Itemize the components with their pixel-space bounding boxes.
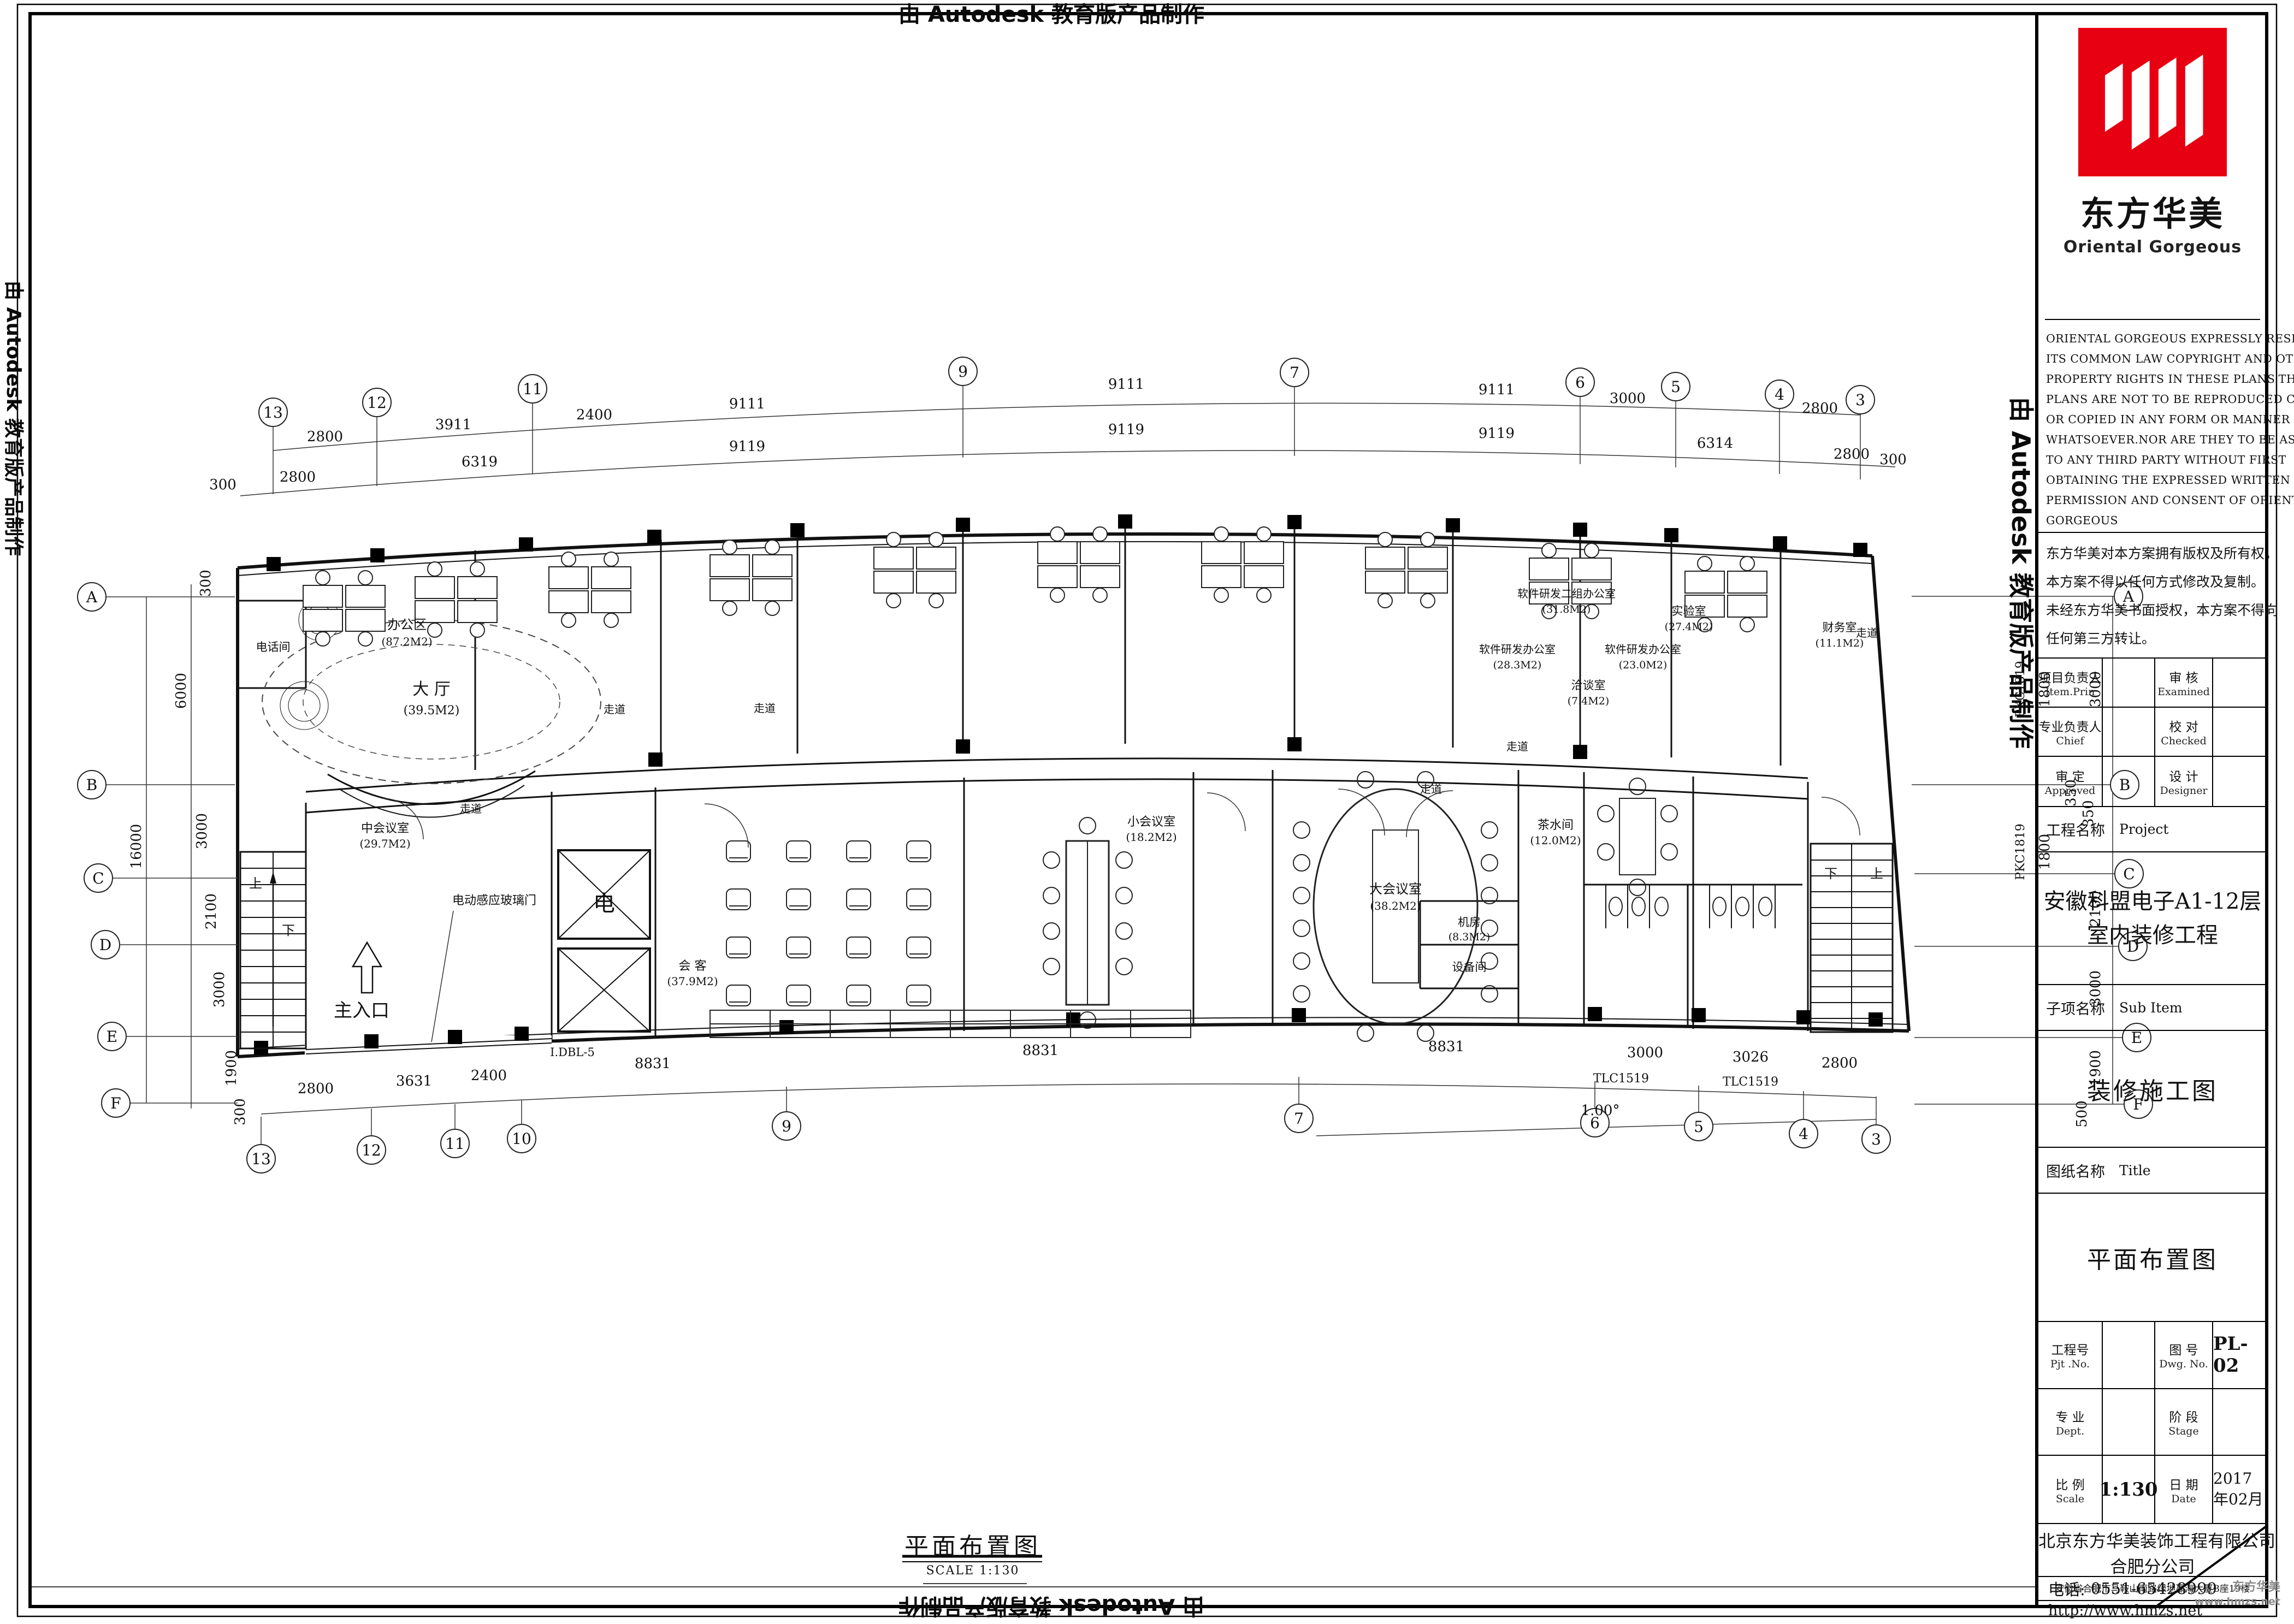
rights-line: 未经东方华美书面授权，本方案不得向 bbox=[2046, 596, 2262, 625]
corridor-label: 走道 bbox=[1506, 740, 1528, 753]
project-name-line2: 室内装修工程 bbox=[2087, 918, 2218, 952]
grid-label: 11 bbox=[523, 380, 542, 398]
washroom-fixtures bbox=[1609, 897, 1772, 916]
cell-blank bbox=[2103, 659, 2155, 708]
grid-label: 9 bbox=[958, 363, 968, 381]
dim-label: 9119 bbox=[1479, 425, 1515, 442]
sheet-title-text: 平面布置图 bbox=[2087, 1240, 2218, 1275]
room-label-lobby: 大 厅 bbox=[412, 680, 451, 699]
dim-label: 3911 bbox=[435, 417, 471, 433]
room-area-office-area: (87.2M2) bbox=[381, 635, 432, 648]
label: 图 号 bbox=[2169, 1339, 2198, 1358]
cell-stage: 阶 段Stage bbox=[2155, 1389, 2213, 1456]
sheet-label-row: 图纸名称 Title bbox=[2038, 1148, 2267, 1194]
grid-label: 4 bbox=[1775, 386, 1784, 404]
entrance-arrow bbox=[353, 943, 381, 993]
stair-down-label: 下 bbox=[1824, 866, 1837, 881]
dim-label: 9119 bbox=[729, 438, 765, 455]
room-area-rd3: (23.0M2) bbox=[1619, 659, 1668, 671]
autodesk-banner-top: 由 Autodesk 教育版产品制作 bbox=[778, 0, 1325, 28]
dim-label: 8831 bbox=[635, 1056, 671, 1072]
copyright-line: GORGEOUS bbox=[2046, 511, 2261, 531]
grid-label: 10 bbox=[512, 1130, 531, 1148]
cell-blank bbox=[2103, 757, 2155, 806]
subitem-value: 装修施工图 bbox=[2038, 1031, 2267, 1148]
rights-line: 任何第三方转让。 bbox=[2046, 625, 2262, 653]
floor-plan-sheet: 13 12 11 9 7 6 5 4 3 13 12 11 10 9 7 6 5… bbox=[0, 0, 2294, 1622]
label: 工程号 bbox=[2051, 1339, 2089, 1358]
scale-value: 1:130 bbox=[979, 1564, 1019, 1578]
room-label-glass-door: 电动感应玻璃门 bbox=[452, 894, 536, 908]
copyright-line: PLANS ARE NOT TO BE REPRODUCED CHANGED bbox=[2046, 389, 2261, 410]
grid-label: E bbox=[107, 1028, 117, 1046]
grid-label: 12 bbox=[367, 394, 387, 412]
room-label-rd2: 软件研发二组办公室 bbox=[1517, 587, 1616, 600]
label-en: Chief bbox=[2056, 735, 2084, 747]
room-area-server: (8.3M2) bbox=[1448, 931, 1491, 943]
project-label-en: Project bbox=[2119, 821, 2168, 837]
dim-label: 3631 bbox=[396, 1073, 432, 1089]
scale-label: SCALE bbox=[926, 1564, 974, 1578]
project-label-row: 工程名称 Project bbox=[2038, 807, 2267, 852]
room-area-reception: (37.9M2) bbox=[667, 975, 718, 988]
sheet-label-cn: 图纸名称 bbox=[2046, 1160, 2105, 1181]
copyright-line: OBTAINING THE EXPRESSED WRITTEN bbox=[2046, 470, 2261, 490]
dim-label: 8831 bbox=[1022, 1042, 1059, 1059]
dim-label: 2800 bbox=[280, 469, 316, 485]
stair-up-label: 上 bbox=[249, 876, 262, 891]
project-label-cn: 工程名称 bbox=[2046, 819, 2105, 840]
label-en: Designer bbox=[2160, 785, 2207, 797]
dim-label: 2800 bbox=[1834, 446, 1870, 463]
title-block: 东方华美 Oriental Gorgeous ORIENTAL GORGEOUS… bbox=[2035, 14, 2267, 1607]
stair-up-label: 上 bbox=[1870, 866, 1883, 881]
corridor-label: 走道 bbox=[460, 802, 482, 815]
cell-date-value: 2017年02月 bbox=[2213, 1456, 2267, 1523]
cell-item-prin: 项目负责人Item.Prin bbox=[2038, 659, 2103, 708]
room-area-negotiation: (7.4M2) bbox=[1568, 695, 1610, 707]
label: 比 例 bbox=[2055, 1474, 2084, 1493]
dim-label: 3000 bbox=[211, 971, 228, 1007]
room-label-meeting-large: 大会议室 bbox=[1369, 881, 1422, 897]
label: 审 定 bbox=[2055, 766, 2084, 785]
dim-label: 1900 bbox=[223, 1050, 240, 1086]
room-label-rd3: 软件研发办公室 bbox=[1605, 643, 1681, 656]
window-mark: TLC1519 bbox=[1593, 1072, 1649, 1086]
grid-label: F bbox=[110, 1094, 121, 1112]
grid-label: C bbox=[92, 869, 104, 887]
dim-label: 6000 bbox=[173, 673, 190, 709]
dim-label: 6319 bbox=[462, 454, 498, 470]
dim-label: 300 bbox=[209, 477, 237, 493]
room-label-reception: 会 客 bbox=[679, 959, 707, 973]
copyright-line: PROPERTY RIGHTS IN THESE PLANS.THESE bbox=[2046, 369, 2261, 389]
subitem-label-row: 子项名称 Sub Item bbox=[2038, 985, 2267, 1031]
dim-label: 2800 bbox=[1802, 400, 1838, 417]
subitem-label-en: Sub Item bbox=[2119, 1000, 2183, 1016]
room-label-rd1: 软件研发办公室 bbox=[1479, 643, 1556, 656]
training-chairs bbox=[726, 841, 931, 1006]
grid-label: A bbox=[86, 588, 98, 606]
dim-label: 9111 bbox=[1108, 376, 1144, 393]
cell-pjt-no: 工程号Pjt .No. bbox=[2038, 1322, 2103, 1389]
corridor-label: 走道 bbox=[754, 702, 776, 715]
drawing-title: 平面布置图 bbox=[901, 1527, 1044, 1562]
company-branch: 合肥分公司 bbox=[2038, 1553, 2267, 1578]
room-label-office-area: 办公区 bbox=[387, 617, 427, 632]
dim-label: 2800 bbox=[1822, 1055, 1858, 1071]
grid-label: 11 bbox=[445, 1135, 465, 1153]
cell-approved: 审 定Approved bbox=[2038, 757, 2103, 806]
room-label-pantry: 茶水间 bbox=[1538, 819, 1574, 832]
cell-scale-value: 1:130 bbox=[2103, 1456, 2155, 1523]
dim-label: 2800 bbox=[298, 1081, 334, 1097]
room-label-meeting-small: 小会议室 bbox=[1127, 815, 1175, 829]
room-label-equipment: 设备间 bbox=[1452, 961, 1487, 974]
grid-label: 5 bbox=[1671, 378, 1681, 396]
elevator-shafts bbox=[558, 850, 650, 1032]
corner-brand-name: 东方华美 bbox=[2171, 1580, 2280, 1595]
room-label-negotiation: 洽谈室 bbox=[1571, 679, 1606, 692]
dim-label: 3000 bbox=[1627, 1045, 1663, 1061]
grid-label: 13 bbox=[263, 404, 283, 422]
copyright-line: ITS COMMON LAW COPYRIGHT AND OTHER bbox=[2046, 349, 2261, 369]
project-name-line1: 安徽科盟电子A1-12层 bbox=[2044, 885, 2262, 918]
dim-label: 300 bbox=[232, 1098, 249, 1125]
dim-label: 9111 bbox=[1479, 382, 1515, 398]
grid-label: 5 bbox=[1694, 1118, 1704, 1136]
cell-date: 日 期Date bbox=[2155, 1456, 2213, 1523]
corner-brand: 东方华美 www.hmzs.net bbox=[2171, 1580, 2280, 1609]
cell-dwg-no-value: PL-02 bbox=[2213, 1322, 2267, 1389]
grid-label: 3 bbox=[1871, 1130, 1881, 1148]
label-en: Checked bbox=[2161, 735, 2207, 747]
dim-label: 300 bbox=[1879, 452, 1907, 468]
autodesk-banner-left: 由 Autodesk 教育版产品制作 bbox=[1, 211, 29, 626]
stair-down-label: 下 bbox=[282, 923, 295, 938]
copyright-line: TO ANY THIRD PARTY WITHOUT FIRST bbox=[2046, 450, 2261, 470]
room-label-meeting-mid: 中会议室 bbox=[361, 822, 409, 835]
date-value: 2017年02月 bbox=[2213, 1469, 2267, 1509]
company-name: 北京东方华美装饰工程有限公司 bbox=[2038, 1532, 2275, 1551]
room-label-phone: 电话间 bbox=[256, 641, 291, 654]
logo-name-cn: 东方华美 bbox=[2045, 186, 2260, 235]
label: 审 核 bbox=[2169, 667, 2198, 686]
label-en: Approved bbox=[2045, 785, 2096, 797]
cell-chief: 专业负责人Chief bbox=[2038, 708, 2103, 757]
grid-label: 12 bbox=[362, 1141, 381, 1159]
cell-dept: 专 业Dept. bbox=[2038, 1389, 2103, 1456]
pantry-fixtures bbox=[1598, 778, 1677, 896]
rights-line: 本方案不得以任何方式修改及复制。 bbox=[2046, 568, 2262, 596]
label: 阶 段 bbox=[2169, 1407, 2198, 1425]
grid-label: 3 bbox=[1855, 391, 1865, 409]
cell-designer: 设 计Designer bbox=[2155, 757, 2213, 806]
label: 日 期 bbox=[2169, 1474, 2198, 1493]
room-area-finance: (11.1M2) bbox=[1816, 637, 1864, 649]
grid-label: 9 bbox=[782, 1117, 791, 1135]
logo-m-icon bbox=[2078, 28, 2227, 176]
dim-label: 3000 bbox=[1610, 390, 1646, 407]
dwg-no-value: PL-02 bbox=[2213, 1333, 2267, 1377]
label: 设 计 bbox=[2169, 766, 2198, 785]
label-en: Examined bbox=[2157, 686, 2210, 698]
room-area-lab: (27.4M2) bbox=[1665, 621, 1713, 633]
cell-examined: 审 核Examined bbox=[2155, 659, 2213, 708]
sheet-value: 平面布置图 bbox=[2038, 1194, 2267, 1322]
window-mark: TLC1519 bbox=[1723, 1075, 1778, 1089]
room-area-meeting-large: (38.2M2) bbox=[1370, 899, 1421, 912]
room-area-lobby: (39.5M2) bbox=[404, 704, 460, 718]
grid-label: 4 bbox=[1799, 1125, 1808, 1143]
subitem-text: 装修施工图 bbox=[2087, 1071, 2218, 1106]
room-area-pantry: (12.0M2) bbox=[1530, 834, 1581, 847]
autodesk-banner-bottom: 由 Autodesk 教育版产品制作 bbox=[778, 1592, 1325, 1624]
label: 专 业 bbox=[2055, 1407, 2084, 1425]
grid-label: 7 bbox=[1290, 364, 1299, 382]
scale-value: 1:130 bbox=[2099, 1479, 2157, 1501]
cell-blank bbox=[2103, 1322, 2155, 1389]
cell-blank bbox=[2213, 708, 2267, 757]
room-label-elevator: 电 bbox=[593, 891, 615, 916]
cell-checked: 校 对Checked bbox=[2155, 708, 2213, 757]
dim-label: 9111 bbox=[729, 396, 765, 412]
dim-label: 3026 bbox=[1733, 1049, 1769, 1065]
dim-label: 2400 bbox=[471, 1068, 507, 1084]
phone-label: 电话: bbox=[2048, 1577, 2085, 1600]
room-label-lab: 实验室 bbox=[1672, 604, 1706, 618]
dim-label: 300 bbox=[198, 570, 214, 597]
room-area-meeting-mid: (29.7M2) bbox=[359, 837, 410, 850]
corridor-label: 走道 bbox=[604, 703, 625, 716]
room-label-elevator-model: I.DBL-5 bbox=[550, 1046, 595, 1059]
label: 校 对 bbox=[2169, 716, 2198, 735]
label-en: Date bbox=[2171, 1493, 2196, 1505]
grid-label: 6 bbox=[1575, 374, 1585, 392]
grid-label: D bbox=[99, 936, 111, 954]
copyright-line: ORIENTAL GORGEOUS EXPRESSLY RESERVES bbox=[2046, 329, 2261, 349]
oriental-gorgeous-logo bbox=[2078, 28, 2227, 176]
corridor-label: 走道 bbox=[1420, 783, 1442, 796]
rights-cn-block: 东方华美对本方案拥有版权及所有权。 本方案不得以任何方式修改及复制。 未经东方华… bbox=[2038, 533, 2267, 659]
cell-blank bbox=[2103, 1389, 2155, 1456]
project-name: 安徽科盟电子A1-12层 室内装修工程 bbox=[2038, 852, 2267, 985]
company-block: 北京东方华美装饰工程有限公司 合肥分公司 安徽省合肥市马鞍山南路绿地赢海大厦B座… bbox=[2038, 1524, 2267, 1577]
meta-table: 工程号Pjt .No. 图 号Dwg. No. PL-02 专 业Dept. 阶… bbox=[2038, 1322, 2267, 1524]
label-en: Stage bbox=[2168, 1425, 2198, 1437]
logo-name-en: Oriental Gorgeous bbox=[2045, 238, 2260, 257]
rights-line: 东方华美对本方案拥有版权及所有权。 bbox=[2046, 540, 2262, 568]
dim-label: 1.00° bbox=[1581, 1103, 1620, 1119]
sheet-frame bbox=[17, 4, 2277, 1616]
copyright-line: OR COPIED IN ANY FORM OR MANNER bbox=[2046, 410, 2261, 430]
copyright-line: WHATSOEVER.NOR ARE THEY TO BE ASSIGHED bbox=[2046, 430, 2261, 450]
cell-dwg-no: 图 号Dwg. No. bbox=[2155, 1322, 2213, 1389]
label-en: Scale bbox=[2056, 1493, 2084, 1505]
dim-label: 2100 bbox=[203, 893, 220, 929]
grid-label: B bbox=[86, 776, 98, 794]
drawing-scale: SCALE 1:130 bbox=[907, 1564, 1039, 1578]
label: 专业负责人 bbox=[2039, 716, 2102, 735]
label-en: Dept. bbox=[2056, 1425, 2084, 1437]
dim-label: 8831 bbox=[1428, 1039, 1464, 1055]
cell-blank bbox=[2213, 757, 2267, 806]
label-en: Item.Prin bbox=[2045, 686, 2095, 698]
room-label-server: 机房 bbox=[1458, 916, 1481, 929]
copyright-block: ORIENTAL GORGEOUS EXPRESSLY RESERVES ITS… bbox=[2038, 320, 2267, 533]
room-area-meeting-small: (18.2M2) bbox=[1126, 831, 1176, 844]
meeting-small-table bbox=[1043, 817, 1132, 1028]
room-label-finance: 财务室 bbox=[1823, 621, 1857, 634]
grid-label: 13 bbox=[251, 1150, 271, 1168]
dim-label: 16000 bbox=[128, 824, 145, 869]
dim-label: 6314 bbox=[1697, 435, 1733, 452]
label-en: Dwg. No. bbox=[2159, 1358, 2208, 1370]
copyright-line: PERMISSION AND CONSENT OF ORIENTAL bbox=[2046, 490, 2261, 511]
room-area-rd1: (28.3M2) bbox=[1493, 659, 1542, 671]
corner-brand-url: www.hmzs.net bbox=[2171, 1595, 2280, 1609]
cell-blank bbox=[2103, 708, 2155, 757]
dim-label: 2800 bbox=[307, 429, 343, 445]
room-area-rd2: (31.8M2) bbox=[1542, 603, 1591, 615]
grid-label: 7 bbox=[1294, 1110, 1304, 1128]
columns bbox=[254, 514, 1883, 1055]
personnel-table: 项目负责人Item.Prin 审 核Examined 专业负责人Chief 校 … bbox=[2038, 659, 2267, 807]
dim-label: 3000 bbox=[194, 813, 210, 849]
cell-scale: 比 例Scale bbox=[2038, 1456, 2103, 1523]
label: 项目负责人 bbox=[2039, 667, 2102, 686]
dimension-lines bbox=[106, 386, 2124, 1145]
sheet-label-en: Title bbox=[2119, 1163, 2151, 1178]
cell-blank bbox=[2213, 1389, 2267, 1456]
label-en: Pjt .No. bbox=[2050, 1358, 2090, 1370]
glass-door-leader bbox=[431, 911, 453, 1042]
dim-label: 2400 bbox=[576, 407, 612, 423]
cell-blank bbox=[2213, 659, 2267, 708]
dim-label: 9119 bbox=[1108, 422, 1144, 438]
logo-box: 东方华美 Oriental Gorgeous bbox=[2045, 28, 2260, 320]
room-label-entrance: 主入口 bbox=[334, 1000, 389, 1022]
subitem-label-cn: 子项名称 bbox=[2046, 997, 2105, 1018]
